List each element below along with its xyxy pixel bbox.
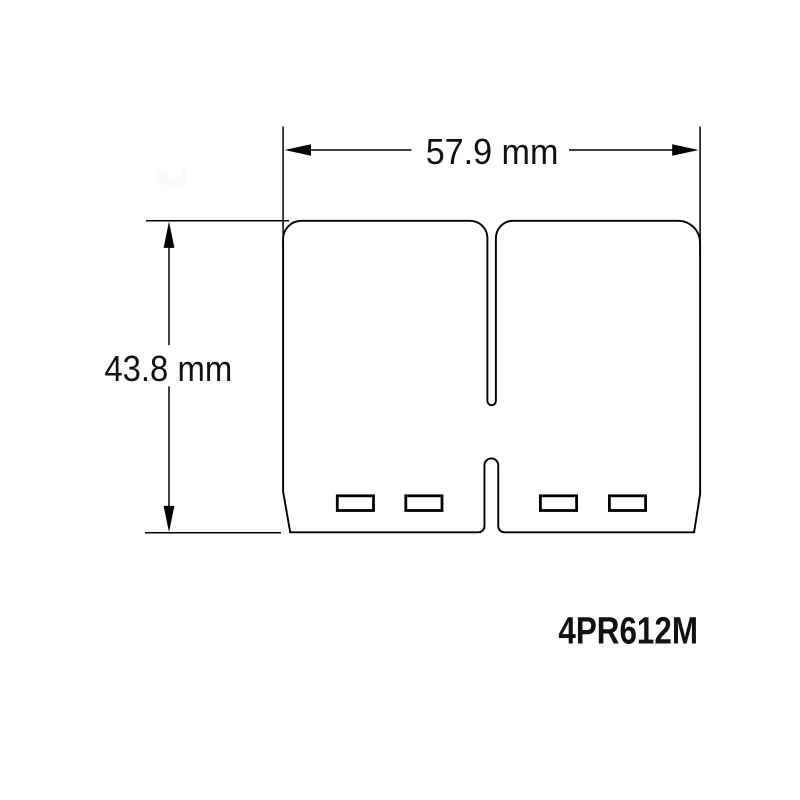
- svg-text:43.8 mm: 43.8 mm: [104, 348, 232, 389]
- svg-text:57.9 mm: 57.9 mm: [426, 131, 559, 172]
- svg-text:4PR612M: 4PR612M: [558, 610, 698, 652]
